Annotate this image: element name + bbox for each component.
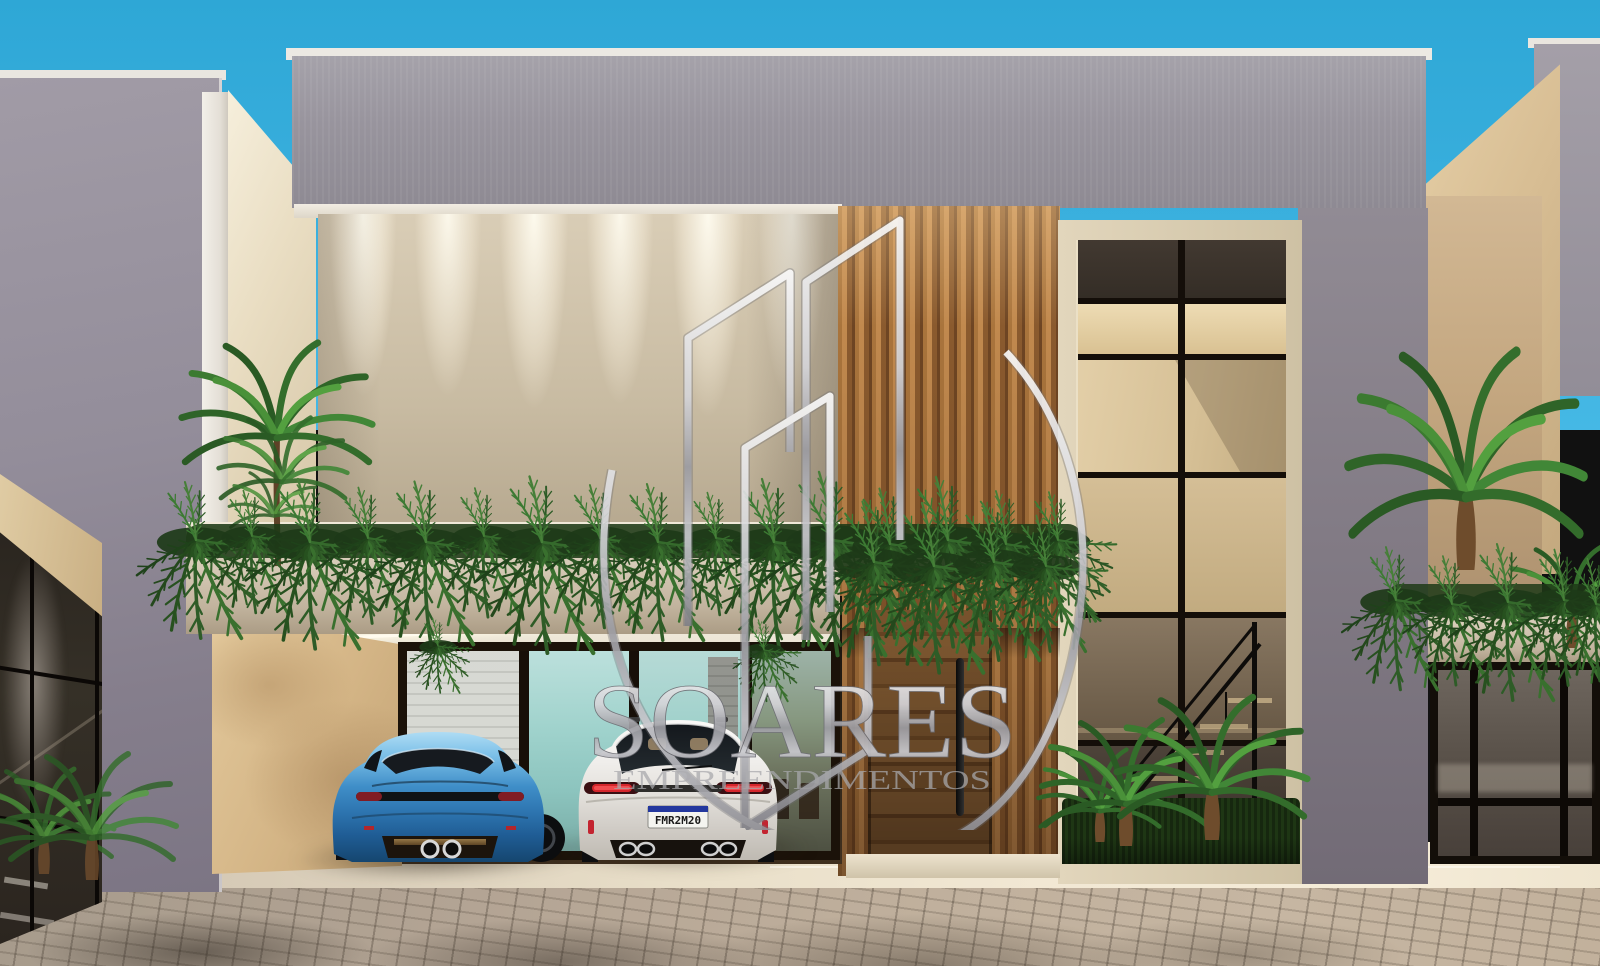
- white-suv: FMR2M20: [562, 682, 794, 866]
- window-mullion: [30, 524, 34, 944]
- right-neighbor-recess-wall: [1420, 196, 1542, 604]
- main-house-right-wall: [1298, 208, 1428, 884]
- exhaust-tip: [702, 843, 718, 855]
- exhaust-tip: [638, 843, 654, 855]
- door-handle: [956, 658, 964, 816]
- mullion: [1178, 240, 1185, 864]
- render-scene: FMR2M20: [0, 0, 1600, 966]
- roof-rail: [628, 717, 640, 722]
- street-reflection: [1438, 764, 1592, 792]
- plate-number: FMR2M20: [655, 814, 701, 827]
- garage-mullion: [1438, 798, 1592, 806]
- exhaust-tip: [422, 841, 438, 857]
- stair-tread: [4, 877, 48, 890]
- headrest: [690, 738, 708, 750]
- grass-bed: [1062, 798, 1300, 864]
- taillight: [356, 792, 382, 801]
- garage-mullion: [1470, 670, 1478, 856]
- roof-rail: [716, 717, 728, 722]
- glass-curtain-wall: [1076, 240, 1284, 864]
- main-house-parapet-band: [292, 56, 1426, 208]
- reflector: [506, 826, 516, 830]
- entry-step: [846, 854, 1060, 878]
- exhaust-tip: [620, 843, 636, 855]
- reflector: [762, 820, 768, 834]
- reflector: [364, 826, 374, 830]
- exhaust-tip: [444, 841, 460, 857]
- exhaust-tip: [720, 843, 736, 855]
- right-neighbor-garage-glass: [1430, 662, 1600, 864]
- blue-sports-car: [312, 694, 568, 870]
- fern-planter: [186, 522, 840, 634]
- garage-mullion: [1560, 670, 1568, 856]
- taillight: [498, 792, 524, 801]
- plate-band: [648, 806, 708, 812]
- window-mullion: [0, 815, 108, 836]
- interior-chair-silhouette: [799, 783, 819, 819]
- planter-lip: [840, 556, 1082, 566]
- front-door: [868, 610, 992, 870]
- taillight-trim: [634, 785, 722, 792]
- headrest: [648, 738, 666, 750]
- stair-tread: [0, 912, 54, 926]
- glass-pane: [1438, 670, 1592, 856]
- reflector: [588, 820, 594, 834]
